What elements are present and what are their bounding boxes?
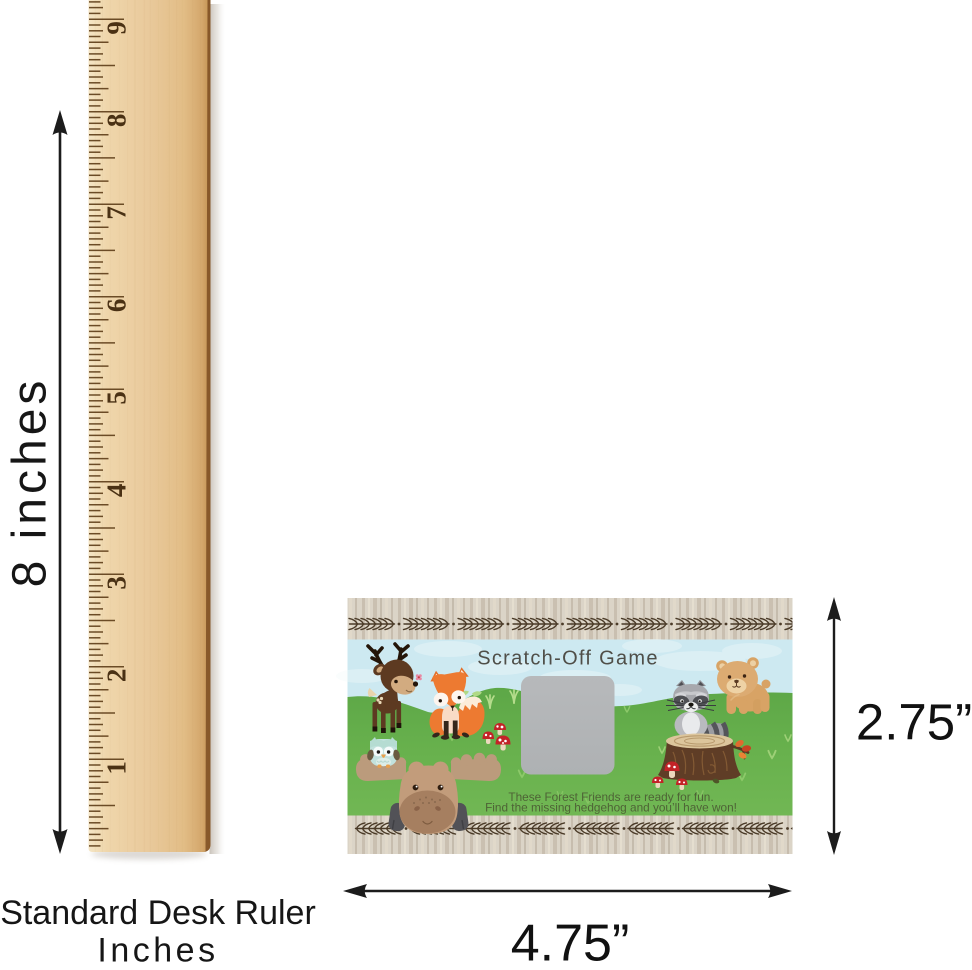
svg-text:Find the missing hedgehog and: Find the missing hedgehog and you’ll hav… [485,801,737,815]
svg-text:6: 6 [101,299,131,313]
svg-text:7: 7 [101,206,131,220]
svg-text:8 inches: 8 inches [4,377,57,588]
svg-text:9: 9 [101,21,131,35]
svg-text:4.75”: 4.75” [511,915,630,970]
svg-text:3: 3 [101,576,131,590]
svg-text:Standard Desk Ruler: Standard Desk Ruler [0,894,316,932]
svg-text:1: 1 [101,761,131,775]
svg-text:5: 5 [101,391,131,405]
svg-text:2: 2 [101,669,131,683]
svg-text:2.75”: 2.75” [856,694,972,751]
svg-text:Inches: Inches [97,932,218,970]
svg-text:4: 4 [101,484,131,498]
svg-text:8: 8 [101,114,131,128]
svg-text:Scratch-Off Game: Scratch-Off Game [477,648,659,670]
